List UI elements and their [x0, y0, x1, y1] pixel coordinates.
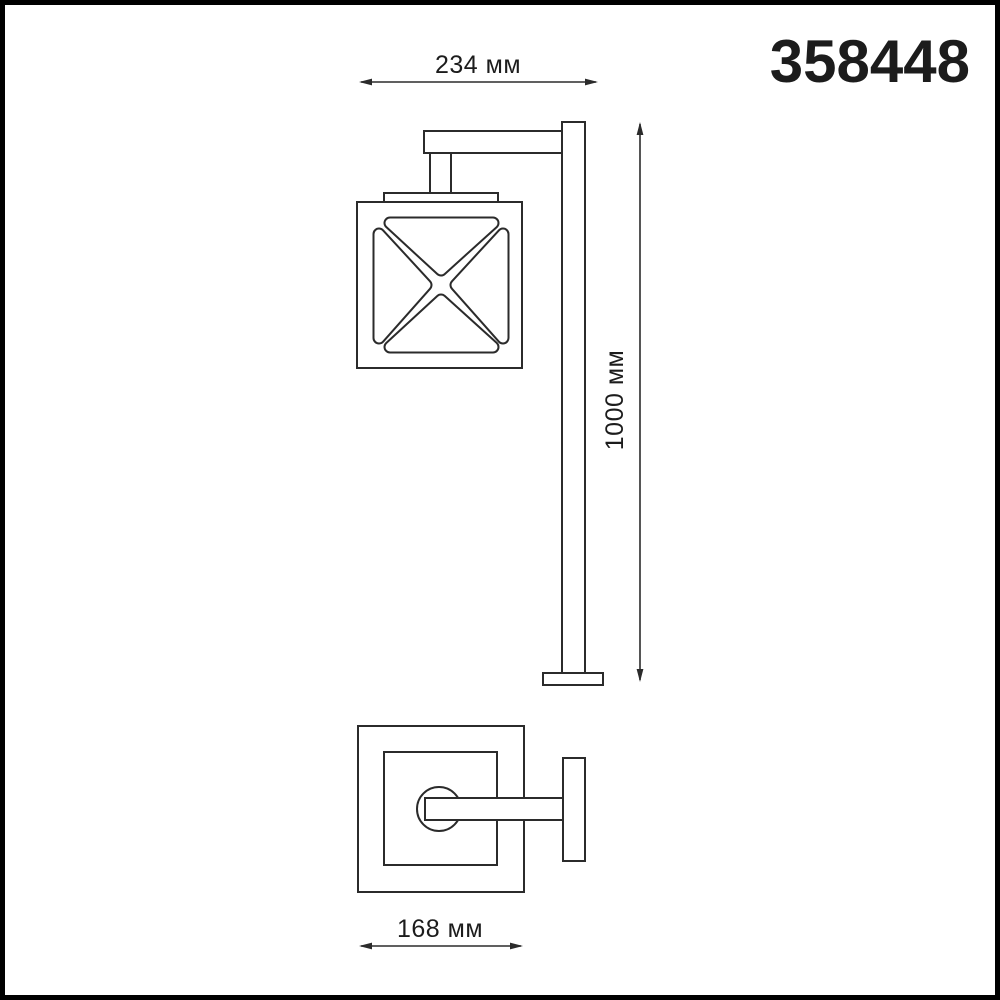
width-dimension: 234 мм — [359, 51, 598, 85]
arrow-left-icon — [359, 79, 372, 86]
side-view — [357, 122, 603, 685]
lamp-dimension-diagram: 234 мм 1000 мм 168 мм 358448 — [0, 0, 1000, 1000]
arrow-right-icon — [510, 943, 523, 950]
lamp-stem — [430, 153, 451, 194]
base-plate — [543, 673, 603, 685]
top-view — [358, 726, 585, 892]
product-code: 358448 — [770, 28, 970, 95]
arrow-left-icon — [359, 943, 372, 950]
lamp-pole — [562, 122, 585, 673]
height-dimension-label: 1000 мм — [601, 350, 629, 450]
base-width-dimension: 168 мм — [359, 915, 523, 949]
top-view-mount-plate — [563, 758, 585, 861]
arrow-right-icon — [585, 79, 598, 86]
technical-drawing-page: 234 мм 1000 мм 168 мм 358448 — [0, 0, 1000, 1000]
width-dimension-label: 234 мм — [435, 51, 521, 79]
lamp-arm — [424, 131, 564, 153]
height-dimension: 1000 мм — [601, 122, 643, 682]
arrow-down-icon — [637, 669, 644, 682]
base-width-dimension-label: 168 мм — [397, 915, 483, 943]
top-view-arm — [425, 798, 564, 820]
arrow-up-icon — [637, 122, 644, 135]
